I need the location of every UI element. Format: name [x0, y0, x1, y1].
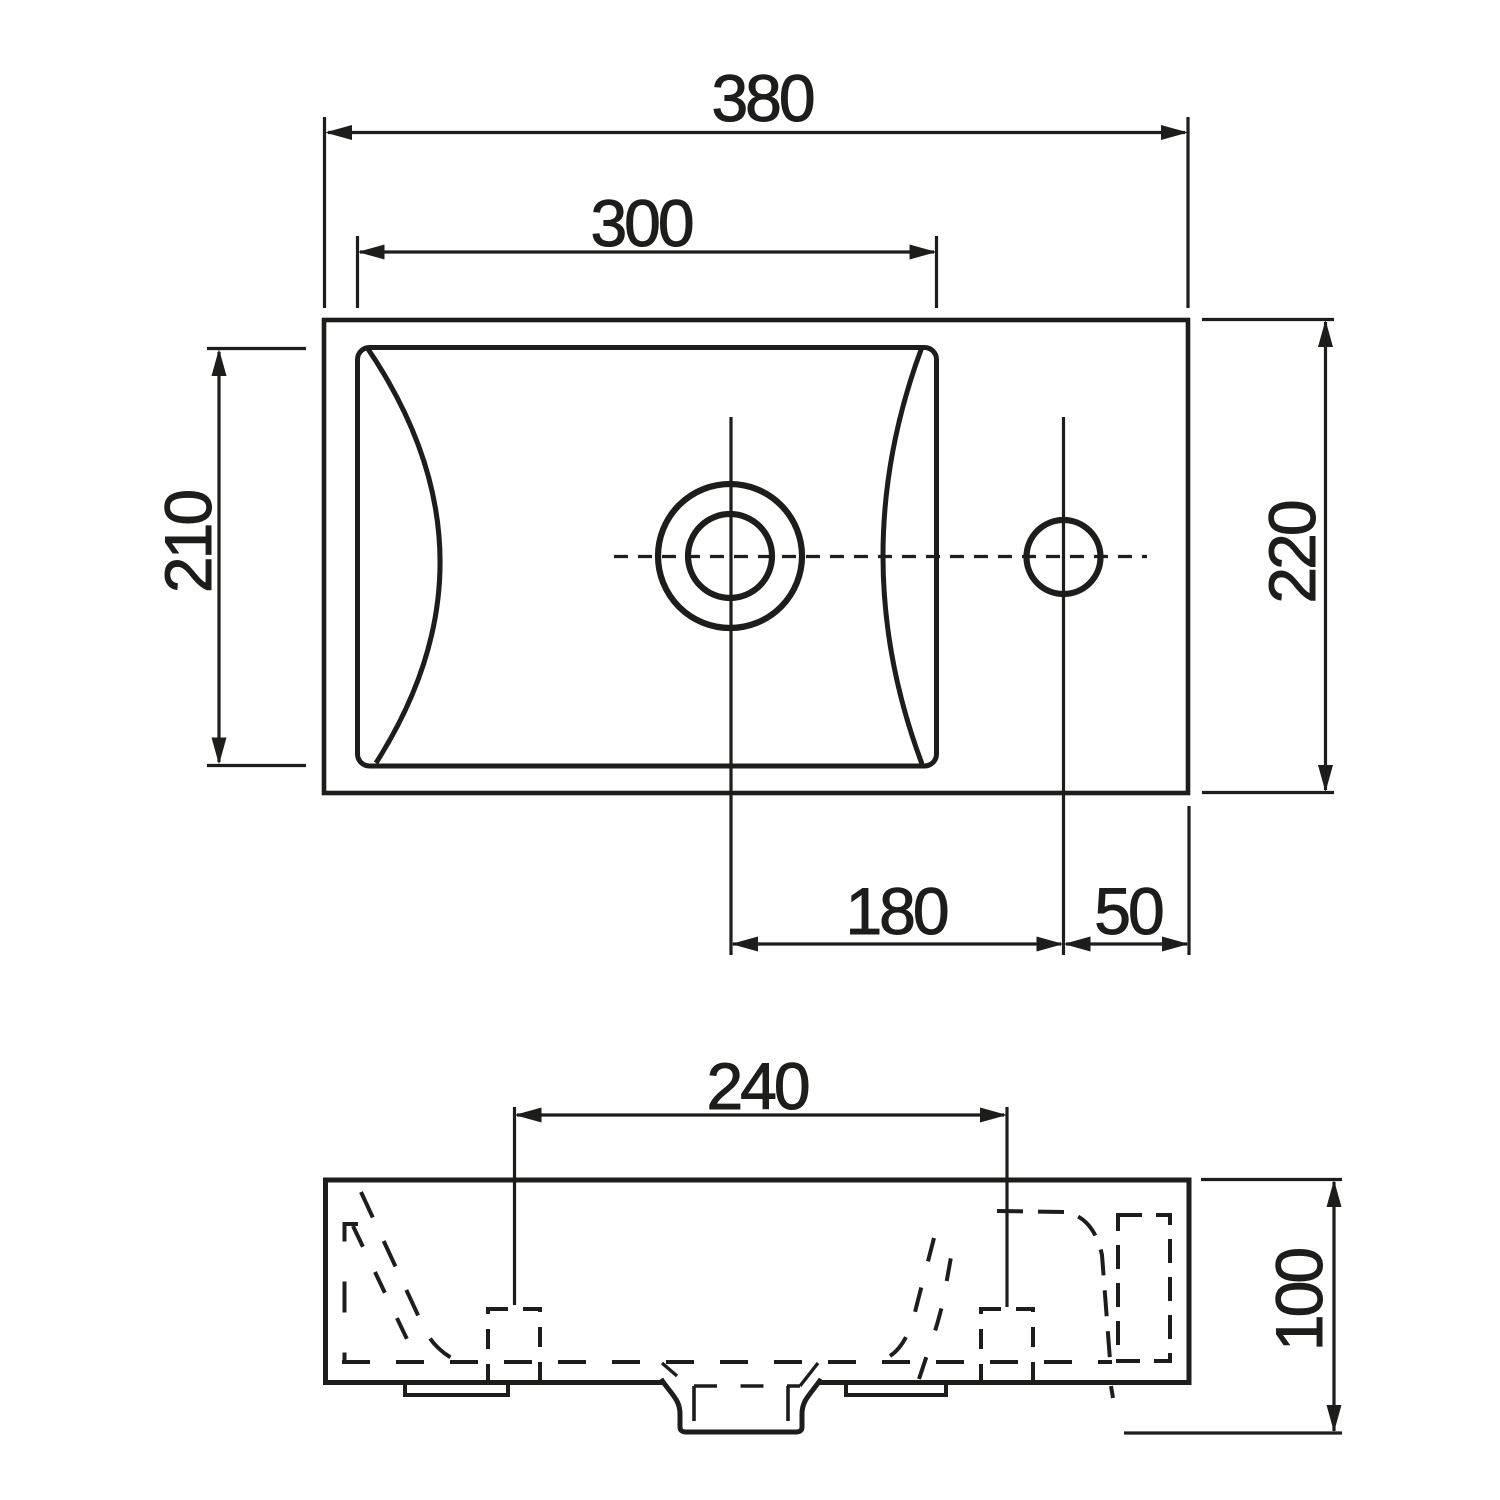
- svg-text:220: 220: [1255, 501, 1329, 603]
- svg-text:50: 50: [1094, 874, 1163, 948]
- svg-text:100: 100: [1262, 1249, 1336, 1351]
- svg-text:240: 240: [706, 1049, 808, 1123]
- svg-text:210: 210: [151, 491, 225, 593]
- svg-text:380: 380: [711, 61, 813, 135]
- svg-text:180: 180: [845, 874, 947, 948]
- svg-text:300: 300: [590, 186, 692, 260]
